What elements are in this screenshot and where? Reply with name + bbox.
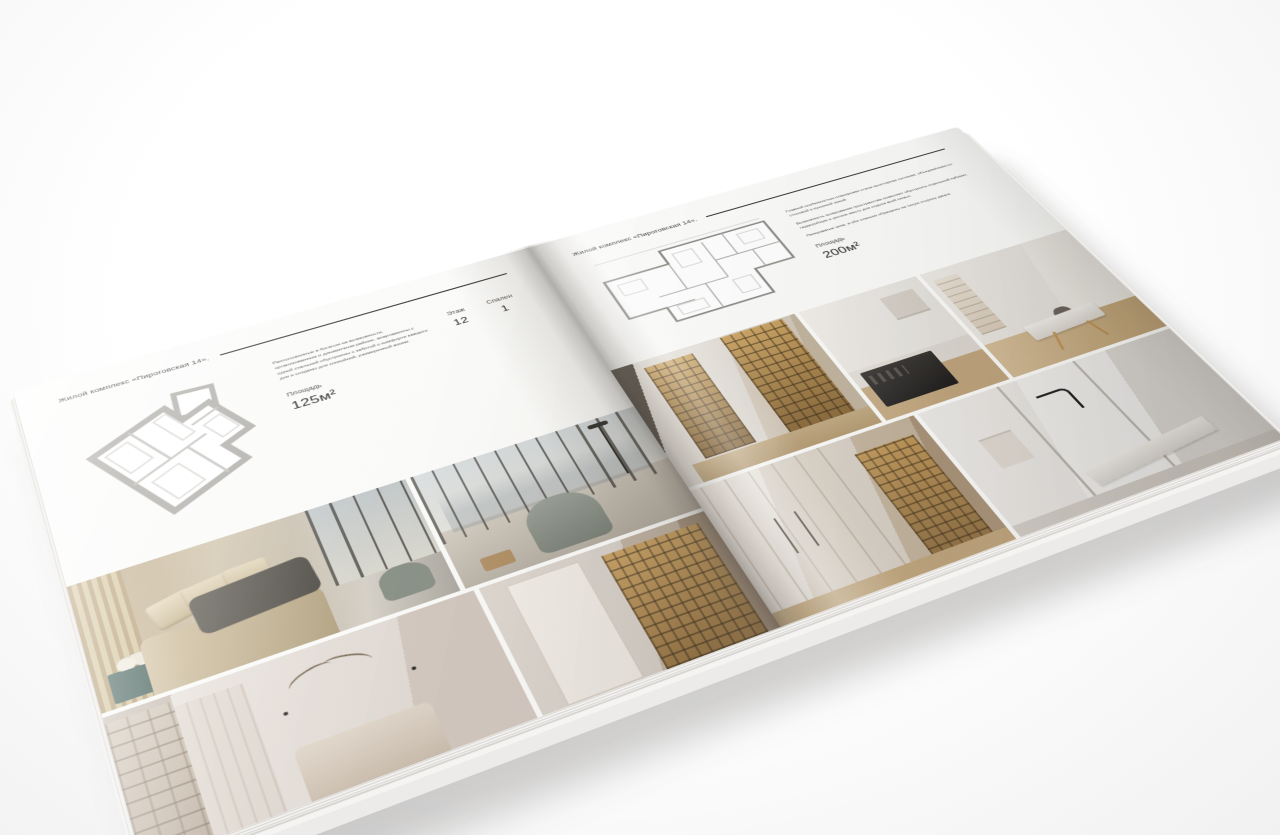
photo-backdrop: Жилой комплекс «Пироговская 14». — [0, 0, 1280, 835]
bed-base — [138, 581, 343, 702]
stat-bedrooms-label: Спален — [485, 293, 513, 305]
wardrobe-panels — [173, 683, 288, 835]
collage-row — [67, 406, 702, 714]
wall-shelf — [879, 288, 930, 318]
teal-console-table — [107, 659, 164, 704]
wardrobe-handle — [773, 518, 799, 553]
photo-living-room-window — [410, 406, 702, 589]
lit-display-cabinet — [854, 435, 1003, 567]
hanging-towel — [978, 430, 1034, 469]
wall-panel-divider — [1072, 360, 1186, 476]
stat-floor-value: 12 — [452, 315, 471, 327]
dark-kitchen-island — [860, 350, 959, 407]
gold-desk-leg — [1086, 320, 1109, 335]
flower-bouquet — [111, 648, 156, 675]
bed-pillow — [179, 571, 242, 617]
window-mullions — [410, 406, 675, 545]
gray-throw-blanket — [186, 554, 323, 636]
stat-bedrooms-value: 1 — [499, 303, 511, 313]
desk-chair — [1049, 304, 1082, 325]
wood-side-table — [479, 549, 517, 572]
photo-master-bedroom — [67, 479, 461, 714]
accent-armchair — [374, 557, 438, 603]
wall-panel-divider — [996, 386, 1106, 506]
wall-sconce — [411, 666, 417, 671]
gold-desk-leg — [1052, 332, 1064, 351]
lounge-armchair — [516, 484, 616, 555]
stat-bedrooms-value: 2 — [1031, 146, 1044, 154]
floor-lamp-head — [587, 420, 609, 430]
wood-floor — [692, 406, 881, 482]
perspective-stage: Жилой комплекс «Пироговская 14». — [0, 0, 1280, 835]
lit-display-cabinet — [643, 353, 756, 459]
floor-lamp-pole — [597, 425, 630, 474]
stat-bedrooms-label: Спален — [1017, 138, 1042, 148]
branch-decor — [322, 651, 372, 673]
designer-desk — [1023, 302, 1105, 341]
black-faucet — [1035, 386, 1085, 418]
wardrobe-handle — [794, 511, 820, 546]
bed-pillow — [221, 556, 277, 596]
left-apartment-info: Расположенные в богатом на возможности, … — [270, 287, 585, 478]
cooktop-grill — [868, 365, 910, 385]
branch-decor — [284, 657, 338, 696]
city-view — [427, 418, 652, 533]
open-brochure: Жилой комплекс «Пироговская 14». — [13, 127, 1280, 835]
left-info-main: Расположенные в богатом на возможности, … — [272, 318, 484, 477]
wall-sconce — [283, 711, 289, 716]
window-mullions — [305, 479, 441, 586]
bed-pillow — [144, 588, 204, 632]
doorway — [505, 561, 645, 707]
